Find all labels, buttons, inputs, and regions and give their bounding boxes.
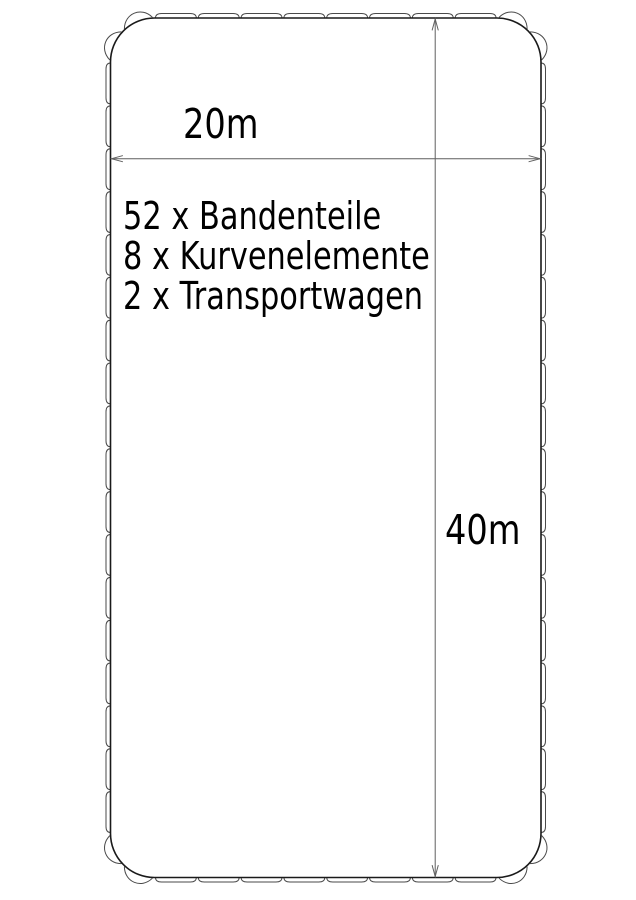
parts-list-item-bandenteile: 52 x Bandenteile [123,196,430,236]
height-dimension-label: 40m [445,508,521,553]
band-outer-segments [105,12,547,883]
parts-list: 52 x Bandenteile 8 x Kurvenelemente 2 x … [123,196,430,316]
rink-diagram: 20m 40m 52 x Bandenteile 8 x Kurveneleme… [0,0,636,900]
dimension-lines [112,19,541,877]
parts-list-item-transportwagen: 2 x Transportwagen [123,276,430,316]
width-dimension-label: 20m [183,102,259,147]
band-inner-outline [111,18,542,878]
parts-list-item-kurvenelemente: 8 x Kurvenelemente [123,236,430,276]
rink-outline-svg [0,0,636,900]
